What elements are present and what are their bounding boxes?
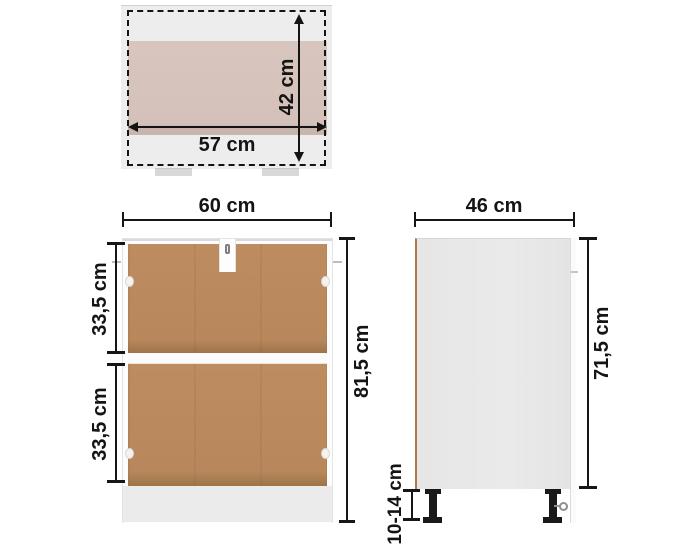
lower-compartment-cap-bottom (107, 480, 125, 483)
mount-mark-right (333, 261, 342, 263)
cabinet-dimension-diagram: 57 cm 42 cm 60 cm (0, 0, 700, 550)
back-panel-lower (128, 364, 327, 486)
cam-fitting-top-right-icon (321, 276, 330, 287)
front-height-measure-cap-top (339, 237, 355, 240)
hanger-notch (219, 239, 236, 272)
hanger-slot-icon (225, 244, 230, 254)
leg-adjuster-knob-icon (559, 502, 568, 511)
cam-fitting-bottom-left-icon (125, 448, 134, 459)
top-view-foot-left (155, 168, 192, 176)
front-width-measure-tick-right (330, 212, 332, 227)
side-view: 46 cm 71,5 cm 10-14 cm (380, 195, 700, 550)
front-height-measure-line (346, 238, 348, 523)
top-view-foot-right (262, 168, 299, 176)
lower-compartment-cap-top (107, 363, 125, 366)
leg-height-label: 10-14 cm (386, 462, 406, 546)
lower-compartment-label: 33,5 cm (90, 386, 110, 462)
side-depth-measure-tick-right (573, 212, 575, 227)
upper-compartment-measure-line (115, 243, 117, 354)
side-depth-measure-line (414, 219, 575, 221)
door-front-edge (570, 238, 576, 523)
leg-height-measure-line (411, 490, 413, 521)
side-depth-measure-tick-left (414, 212, 416, 227)
side-height-measure-cap-bottom (579, 486, 597, 489)
front-width-measure-line (122, 219, 332, 221)
arrow-head-left-icon (128, 122, 138, 132)
arrow-head-up-icon (294, 14, 304, 24)
side-height-measure-line (587, 238, 589, 489)
upper-compartment-cap-bottom (107, 351, 125, 354)
middle-shelf-edge (128, 353, 327, 364)
upper-compartment-cap-top (107, 242, 125, 245)
cabinet-rear-panel (122, 238, 333, 523)
front-height-label: 81,5 cm (352, 328, 372, 398)
top-view-depth-label: 42 cm (277, 52, 297, 122)
top-view: 57 cm 42 cm (0, 0, 360, 185)
front-height-measure-cap-bottom (339, 520, 355, 523)
door-hinge-mark (571, 271, 578, 273)
arrow-head-right-icon (317, 122, 327, 132)
lower-compartment-measure-line (115, 364, 117, 483)
front-view: 60 cm 81,5 cm 33,5 cm (0, 195, 380, 550)
side-height-label: 71,5 cm (592, 310, 612, 380)
leg-left-foot (423, 517, 442, 523)
side-panel-body (415, 238, 570, 489)
upper-compartment-label: 33,5 cm (90, 261, 110, 337)
top-view-width-label: 57 cm (192, 135, 262, 155)
arrow-shaft (135, 126, 320, 128)
arrow-head-down-icon (294, 152, 304, 162)
leg-right-foot (543, 517, 562, 523)
side-depth-label: 46 cm (459, 196, 529, 216)
front-width-label: 60 cm (192, 196, 262, 216)
cam-fitting-bottom-right-icon (321, 448, 330, 459)
leg-left-stem (429, 489, 437, 517)
side-height-measure-cap-top (579, 237, 597, 240)
front-width-measure-tick-left (122, 212, 124, 227)
leg-right-stem (549, 489, 557, 517)
cam-fitting-top-left-icon (125, 276, 134, 287)
plinth-area (123, 486, 332, 522)
arrow-shaft (298, 21, 300, 155)
